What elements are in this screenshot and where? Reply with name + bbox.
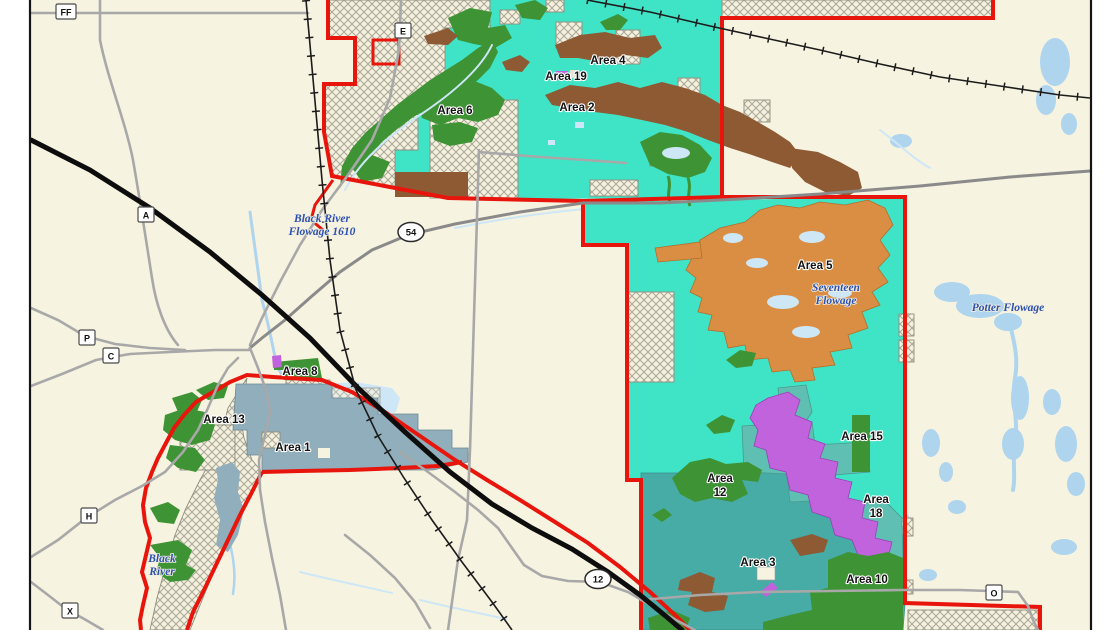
label-area-13: Area 13 — [203, 414, 245, 426]
svg-text:A: A — [143, 211, 150, 221]
label-area-3: Area 3 — [740, 557, 775, 569]
label-area-2: Area 2 — [559, 102, 594, 114]
svg-text:P: P — [84, 334, 90, 344]
road-marker-H: H — [81, 508, 97, 523]
road-marker-A: A — [138, 207, 154, 222]
svg-text:E: E — [400, 27, 406, 37]
road-marker-FF: FF — [56, 4, 76, 19]
svg-text:X: X — [67, 607, 73, 617]
label-area-5: Area 5 — [797, 260, 833, 272]
region-area-15-green — [852, 415, 870, 472]
road-marker-C: C — [103, 348, 119, 363]
svg-text:FF: FF — [61, 8, 72, 18]
label-area-4: Area 4 — [590, 55, 626, 67]
svg-text:12: 12 — [593, 575, 604, 586]
label-seventeen-flowage: SeventeenFlowage — [812, 282, 860, 307]
road-marker-X: X — [62, 603, 78, 618]
road-marker-P: P — [79, 330, 95, 345]
label-area-10: Area 10 — [846, 574, 888, 586]
label-area-19: Area 19 — [545, 71, 587, 83]
road-marker-O: O — [986, 585, 1002, 600]
label-area-15: Area 15 — [841, 431, 883, 443]
label-area-8: Area 8 — [282, 366, 318, 378]
svg-text:H: H — [86, 512, 93, 522]
label-potter-flowage: Potter Flowage — [972, 302, 1045, 314]
road-marker-E: E — [395, 23, 411, 38]
highway-shield-54: 54 — [398, 223, 424, 242]
label-black-river: BlackRiver — [147, 553, 176, 578]
svg-text:C: C — [108, 352, 115, 362]
highway-shield-12: 12 — [585, 570, 611, 589]
map-canvas: 5412 FFEAPCHXO Black RiverFlowage 1610Se… — [0, 0, 1120, 630]
label-black-river-flowage: Black RiverFlowage 1610 — [288, 213, 356, 238]
svg-text:O: O — [990, 589, 997, 599]
svg-text:54: 54 — [406, 228, 417, 239]
label-area-6: Area 6 — [437, 105, 472, 117]
label-area-1: Area 1 — [275, 442, 311, 454]
